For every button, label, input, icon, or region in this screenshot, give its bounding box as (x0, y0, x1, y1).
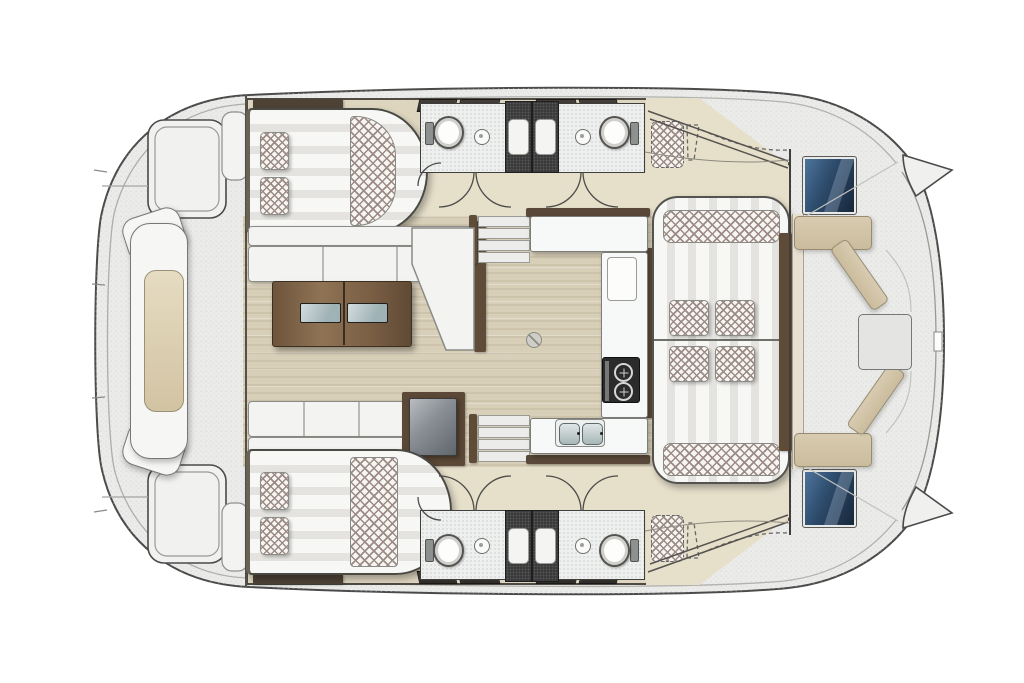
cushion-seam (322, 247, 324, 281)
step-tread (478, 252, 530, 263)
table-glass-panel (300, 303, 341, 323)
toilet-tank (630, 539, 639, 562)
shower-tray (535, 528, 556, 564)
toilet-icon (433, 534, 464, 567)
daybed-pillow (715, 300, 755, 336)
step-tread (478, 240, 530, 251)
washbasin-icon (575, 129, 591, 145)
salon-sofa-back (248, 226, 474, 246)
galley-wall (526, 455, 650, 464)
salon-bench-seat (248, 401, 412, 437)
table-glass-panel (347, 303, 388, 323)
starboard-shelf (253, 574, 343, 584)
daybed-split (654, 339, 788, 341)
deck-hatch-port (803, 157, 856, 214)
daybed-pillow (669, 300, 709, 336)
washbasin-icon (474, 129, 490, 145)
bed-pillow (260, 472, 289, 510)
washbasin-icon (575, 538, 591, 554)
bed-pillow (260, 517, 289, 555)
aft-lounge-cushion (144, 270, 184, 412)
coachroof-front-line (789, 149, 791, 535)
step-tread (478, 439, 530, 450)
daybed-pillow (715, 346, 755, 382)
salon-sofa-seat (248, 246, 474, 282)
daybed-bolster (663, 443, 780, 476)
foredeck-table (858, 314, 912, 370)
bed-pillow (260, 132, 289, 170)
fridge-unit (409, 398, 457, 456)
double-sink-icon (555, 419, 605, 447)
daybed-bolster (663, 210, 780, 243)
crew-berth-outline (651, 121, 684, 168)
toilet-tank (630, 122, 639, 145)
cushion-seam (303, 402, 305, 436)
washbasin-icon (474, 538, 490, 554)
bed-runner (350, 116, 396, 226)
step-tread (478, 427, 530, 438)
step-tread (478, 228, 530, 239)
windshield (792, 214, 804, 469)
bed-pillow (260, 177, 289, 215)
shower-tray (508, 528, 529, 564)
crew-berth-outline (651, 515, 684, 562)
salon-table (272, 281, 412, 347)
shower-tray (508, 119, 529, 155)
port-cabin-bed (246, 108, 428, 234)
foredeck-bench-starboard (794, 433, 872, 467)
step-tread (478, 451, 530, 462)
worktop-board (607, 257, 637, 301)
step-tread (478, 415, 530, 426)
galley-counter-port (530, 216, 648, 252)
cushion-seam (396, 247, 398, 281)
port-transom-step (148, 120, 226, 218)
foredeck-bench-port (794, 216, 872, 250)
toilet-icon (599, 116, 630, 149)
stove-icon (602, 357, 640, 403)
toilet-icon (599, 534, 630, 567)
catamaran-floorplan (0, 0, 1024, 683)
starboard-transom-step (148, 465, 226, 563)
step-tread (478, 216, 530, 227)
forward-daybed (652, 196, 790, 484)
toilet-icon (433, 116, 464, 149)
companionway-rail (469, 414, 477, 463)
daybed-pillow (669, 346, 709, 382)
deck-hatch-starboard (803, 470, 856, 527)
companionway-rail (469, 215, 477, 264)
table-split (343, 282, 345, 345)
cushion-seam (358, 402, 360, 436)
table-mount (526, 332, 542, 348)
bowsprit-fitting (934, 332, 942, 351)
bed-runner (350, 457, 398, 567)
shower-tray (535, 119, 556, 155)
